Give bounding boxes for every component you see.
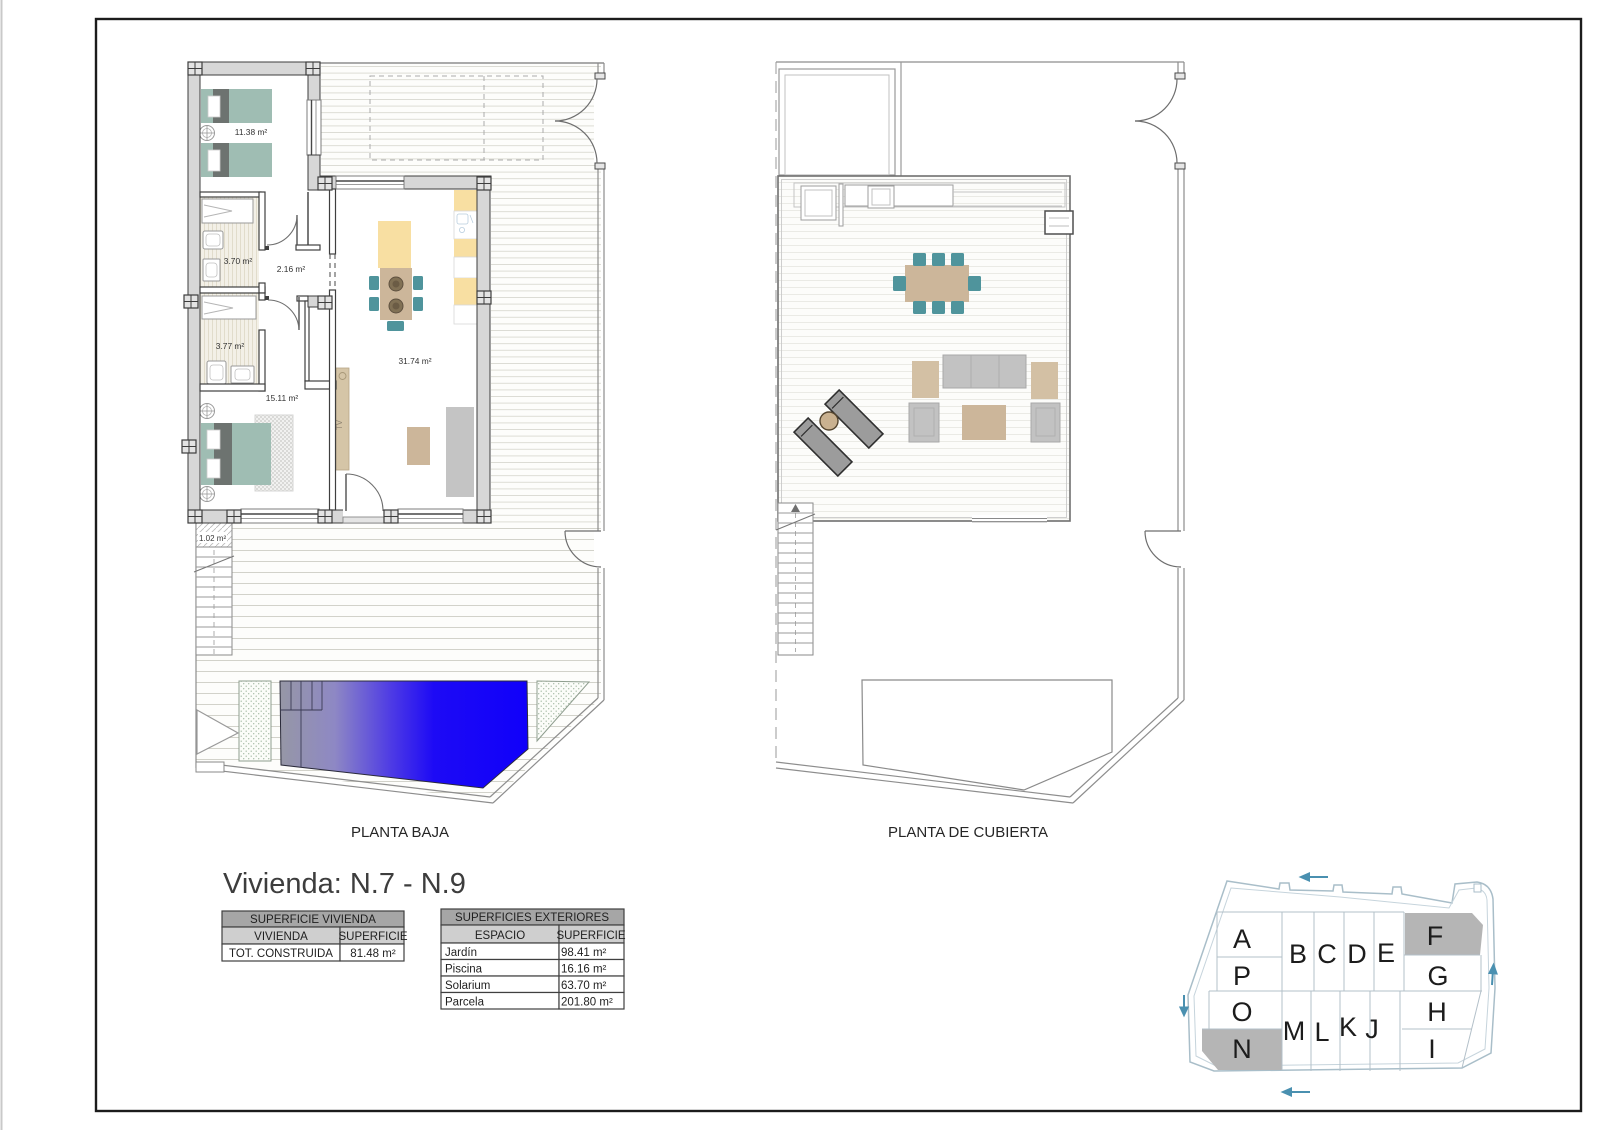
svg-text:SUPERFICIES EXTERIORES: SUPERFICIES EXTERIORES — [455, 912, 609, 924]
svg-text:B: B — [1289, 939, 1307, 969]
svg-text:E: E — [1377, 938, 1395, 968]
svg-text:F: F — [1427, 921, 1444, 951]
svg-text:J: J — [1365, 1014, 1379, 1044]
svg-text:3.77 m²: 3.77 m² — [216, 341, 245, 351]
svg-text:L: L — [1314, 1017, 1329, 1047]
svg-text:PLANTA BAJA: PLANTA BAJA — [351, 824, 449, 841]
svg-text:Solarium: Solarium — [445, 980, 490, 992]
svg-text:G: G — [1427, 961, 1448, 991]
svg-text:ESPACIO: ESPACIO — [475, 930, 525, 942]
svg-text:O: O — [1231, 997, 1252, 1027]
svg-text:2.16 m²: 2.16 m² — [277, 264, 306, 274]
svg-text:TV: TV — [335, 419, 344, 430]
svg-text:Parcela: Parcela — [445, 997, 485, 1009]
svg-text:A: A — [1233, 924, 1251, 954]
svg-text:D: D — [1347, 939, 1367, 969]
svg-text:P: P — [1233, 961, 1251, 991]
svg-text:Vivienda: N.7 - N.9: Vivienda: N.7 - N.9 — [223, 868, 466, 900]
svg-text:1.02 m²: 1.02 m² — [199, 534, 226, 543]
svg-text:C: C — [1317, 939, 1337, 969]
svg-text:81.48 m²: 81.48 m² — [350, 948, 396, 960]
svg-text:M: M — [1283, 1016, 1306, 1046]
svg-text:SUPERFICIE: SUPERFICIE — [338, 931, 407, 943]
svg-text:PLANTA DE CUBIERTA: PLANTA DE CUBIERTA — [888, 824, 1048, 841]
svg-text:201.80 m²: 201.80 m² — [561, 997, 613, 1009]
svg-text:31.74 m²: 31.74 m² — [398, 356, 431, 366]
svg-text:Jardín: Jardín — [445, 947, 477, 959]
svg-text:11.38 m²: 11.38 m² — [235, 127, 268, 137]
svg-text:K: K — [1339, 1012, 1357, 1042]
svg-text:N: N — [1232, 1034, 1252, 1064]
svg-text:3.70 m²: 3.70 m² — [224, 256, 253, 266]
svg-text:63.70 m²: 63.70 m² — [561, 980, 607, 992]
svg-text:Piscina: Piscina — [445, 964, 483, 976]
svg-text:16.16 m²: 16.16 m² — [561, 964, 607, 976]
svg-text:VIVIENDA: VIVIENDA — [254, 931, 308, 943]
svg-text:H: H — [1427, 997, 1447, 1027]
svg-text:SUPERFICIE: SUPERFICIE — [556, 930, 625, 942]
svg-text:I: I — [1428, 1034, 1436, 1064]
svg-text:TOT. CONSTRUIDA: TOT. CONSTRUIDA — [229, 948, 333, 960]
svg-text:15.11 m²: 15.11 m² — [266, 393, 299, 403]
svg-text:98.41 m²: 98.41 m² — [561, 947, 607, 959]
svg-text:SUPERFICIE VIVIENDA: SUPERFICIE VIVIENDA — [250, 914, 376, 926]
